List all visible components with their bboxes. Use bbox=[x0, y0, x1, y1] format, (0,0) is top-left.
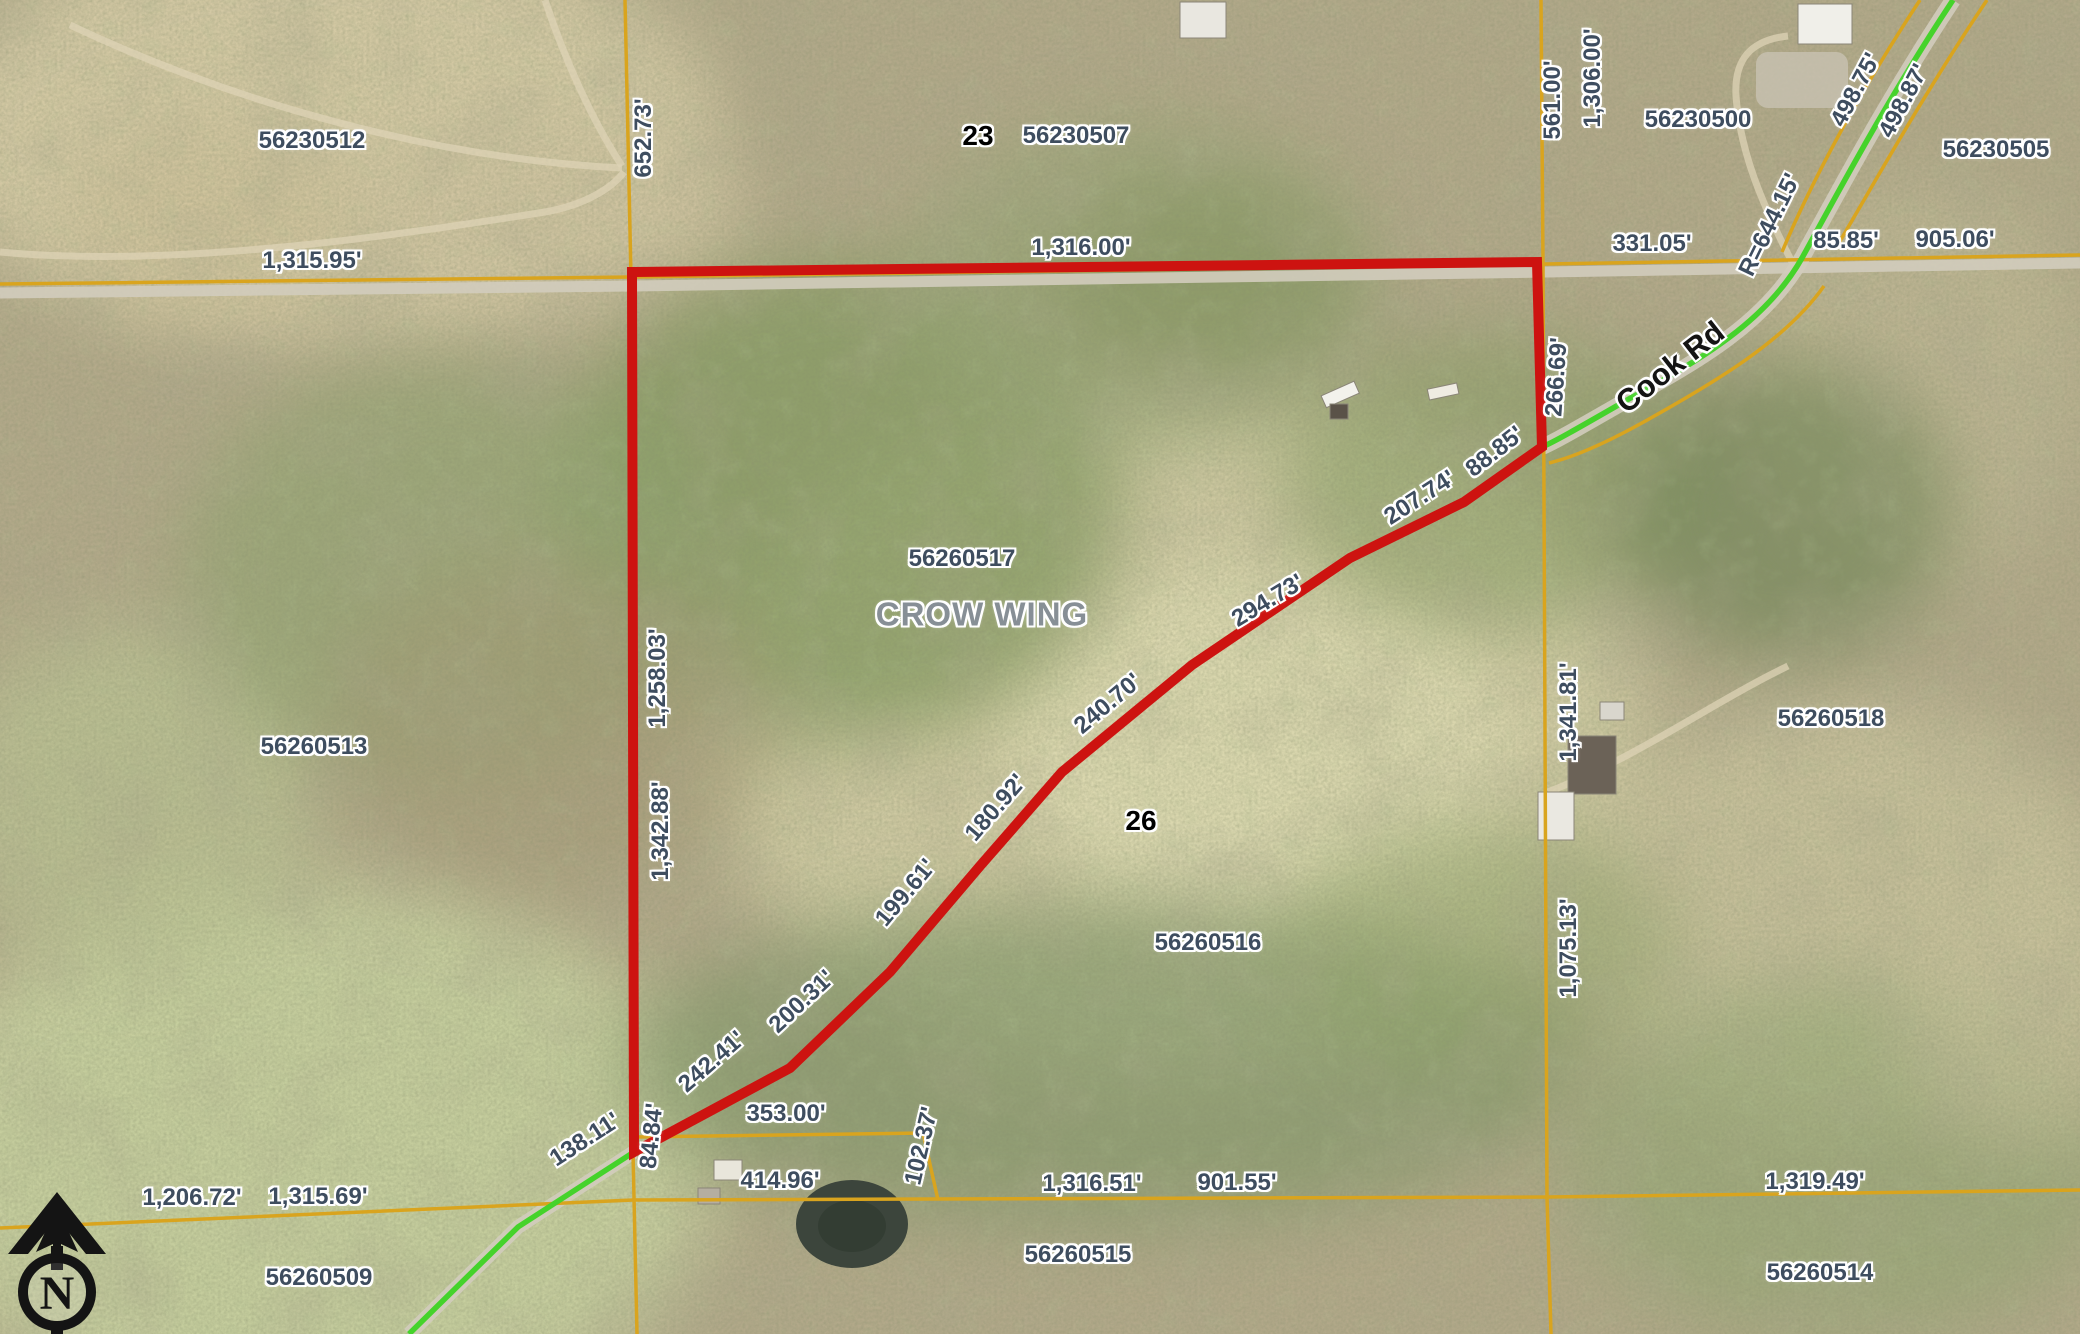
dimension-label: 102.37' bbox=[901, 1105, 942, 1187]
map-labels: 1,315.95'652.73'1,316.00'331.05'561.00'1… bbox=[0, 0, 2080, 1334]
dimension-label: 561.00' bbox=[1541, 60, 1565, 139]
parcel-id-label[interactable]: 56260516 bbox=[1155, 931, 1262, 955]
parcel-id-label[interactable]: 56260513 bbox=[261, 735, 368, 759]
parcel-id-label[interactable]: 56260514 bbox=[1767, 1261, 1874, 1285]
parcel-id-label[interactable]: 56260517 bbox=[909, 547, 1016, 571]
parcel-id-label[interactable]: 56230505 bbox=[1943, 138, 2050, 162]
parcel-id-label[interactable]: 56230500 bbox=[1645, 108, 1752, 132]
dimension-label: 1,316.51' bbox=[1042, 1172, 1141, 1196]
dimension-label: 652.73' bbox=[632, 98, 656, 177]
dimension-label: 905.06' bbox=[1915, 228, 1994, 252]
dimension-label: 85.85' bbox=[1813, 229, 1879, 253]
dimension-label: 294.73' bbox=[1228, 570, 1308, 631]
parcel-id-label[interactable]: 56230512 bbox=[259, 129, 366, 153]
dimension-label: 498.75' bbox=[1827, 49, 1885, 130]
dimension-label: 200.31' bbox=[765, 966, 839, 1038]
dimension-label: 180.92' bbox=[961, 770, 1031, 845]
section-number-label: 26 bbox=[1125, 807, 1156, 835]
dimension-label: 138.11' bbox=[546, 1109, 624, 1171]
dimension-label: 1,306.00' bbox=[1581, 28, 1605, 127]
dimension-label: 1,258.03' bbox=[646, 628, 670, 727]
dimension-label: 1,206.72' bbox=[142, 1186, 241, 1210]
dimension-label: 1,319.49' bbox=[1765, 1170, 1864, 1194]
dimension-label: 353.00' bbox=[746, 1102, 825, 1126]
dimension-label: 199.61' bbox=[871, 855, 940, 931]
dimension-label: 1,075.13' bbox=[1557, 898, 1581, 997]
road-name-label: Cook Rd bbox=[1610, 316, 1730, 419]
section-number-label: 23 bbox=[962, 122, 993, 150]
dimension-label: 901.55' bbox=[1197, 1171, 1276, 1195]
dimension-label: 331.05' bbox=[1612, 232, 1691, 256]
map-canvas[interactable]: N 1,315.95'652.73'1,316.00'331.05'561.00… bbox=[0, 0, 2080, 1334]
dimension-label: R=644.15' bbox=[1735, 170, 1805, 280]
place-name-label: CROW WING bbox=[876, 598, 1088, 631]
dimension-label: 1,315.69' bbox=[268, 1185, 367, 1209]
dimension-label: 266.69' bbox=[1542, 337, 1571, 418]
dimension-label: 1,341.81' bbox=[1557, 662, 1581, 761]
dimension-label: 1,342.88' bbox=[649, 781, 673, 880]
dimension-label: 498.87' bbox=[1875, 60, 1933, 141]
parcel-id-label[interactable]: 56230507 bbox=[1023, 124, 1130, 148]
dimension-label: 84.84' bbox=[637, 1102, 668, 1170]
dimension-label: 414.96' bbox=[740, 1169, 819, 1193]
dimension-label: 242.41' bbox=[674, 1027, 749, 1097]
dimension-label: 207.74' bbox=[1380, 466, 1459, 529]
parcel-id-label[interactable]: 56260509 bbox=[266, 1266, 373, 1290]
parcel-id-label[interactable]: 56260515 bbox=[1025, 1243, 1132, 1267]
dimension-label: 240.70' bbox=[1070, 669, 1146, 738]
dimension-label: 1,316.00' bbox=[1031, 236, 1130, 260]
dimension-label: 1,315.95' bbox=[262, 249, 361, 273]
parcel-id-label[interactable]: 56260518 bbox=[1778, 707, 1885, 731]
dimension-label: 88.85' bbox=[1462, 422, 1529, 481]
